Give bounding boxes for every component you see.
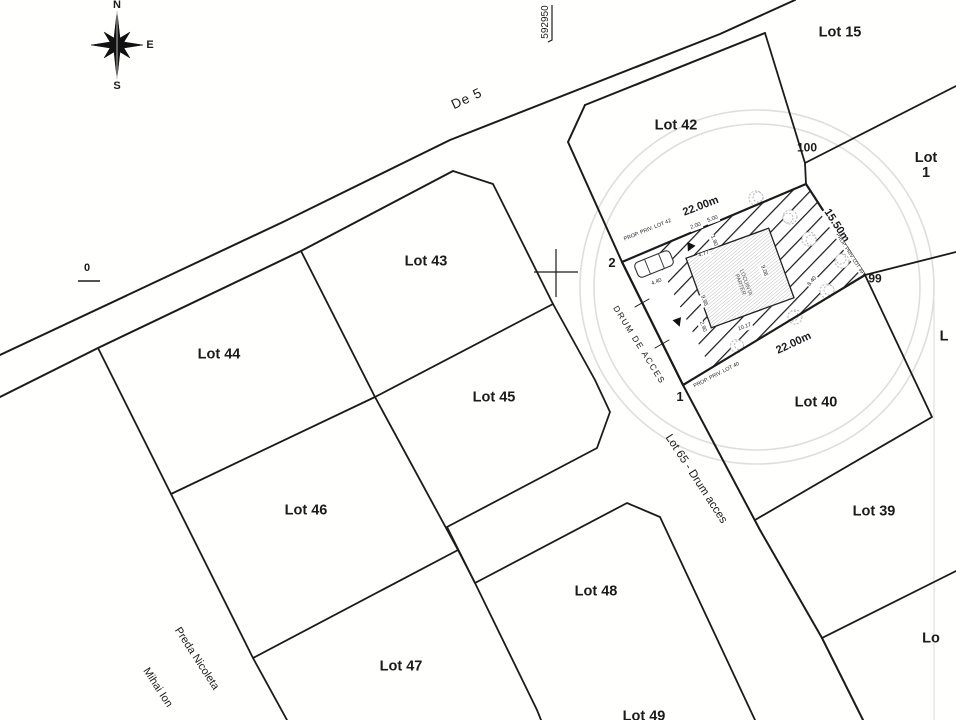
compass-south-label: S: [113, 80, 120, 92]
cadastral-site-plan: N E S Lot 15Lot 1Lot 42Lot 43Lot 44Lot 4…: [0, 0, 956, 720]
compass-east-label: E: [146, 39, 153, 51]
compass-north-label: N: [113, 0, 121, 11]
compass-rose-icon: [91, 11, 143, 79]
parcel-boundaries: [0, 0, 956, 720]
plan-linework: [0, 0, 956, 720]
